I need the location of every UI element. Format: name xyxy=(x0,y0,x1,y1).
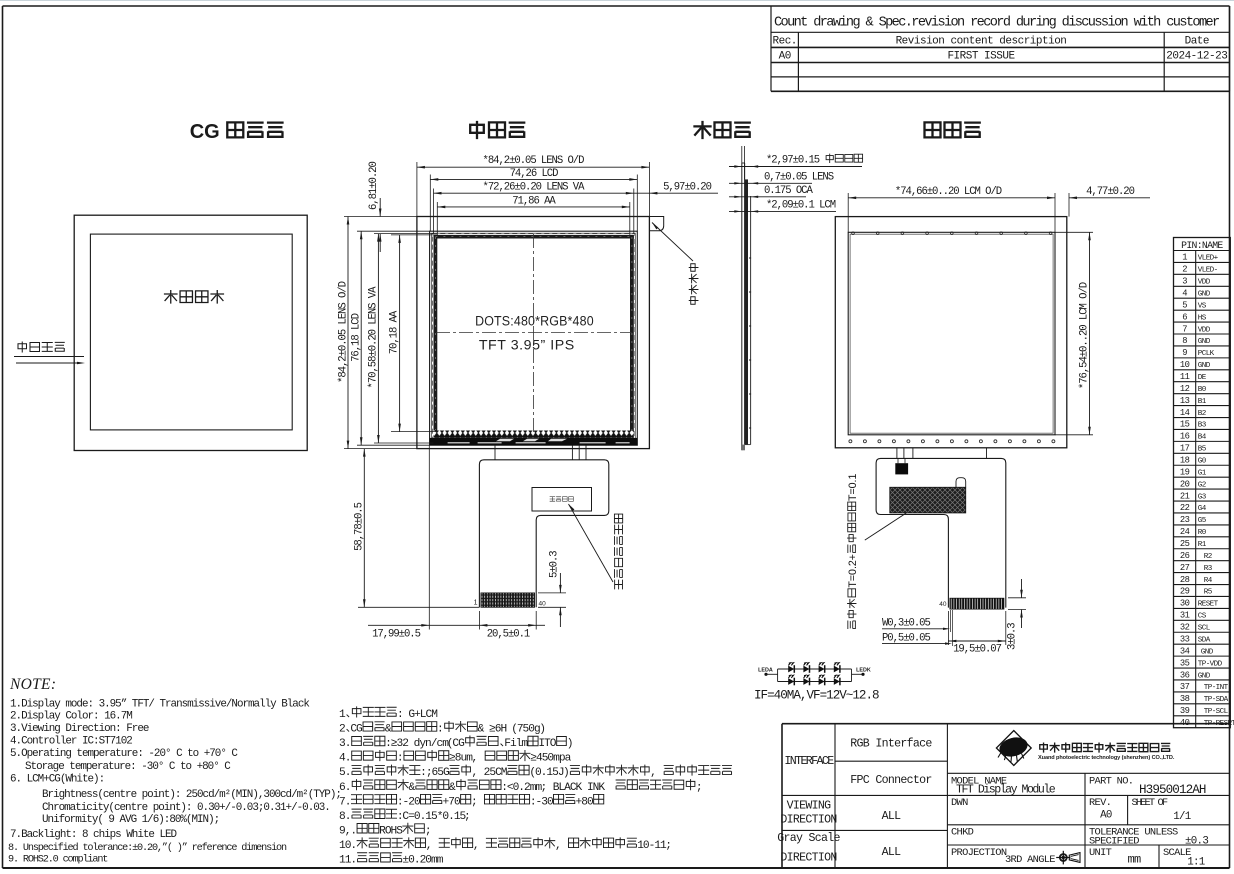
svg-text:27: 27 xyxy=(1180,563,1190,573)
svg-text:NOTE:: NOTE: xyxy=(9,676,56,693)
svg-text:,: , xyxy=(650,767,657,779)
svg-text:+70: +70 xyxy=(443,796,461,808)
svg-text:DIRECTION: DIRECTION xyxy=(780,814,837,827)
svg-text:70,18 AA: 70,18 AA xyxy=(389,310,401,354)
svg-text:Count drawing & Spec.revision: Count drawing & Spec.revision record dur… xyxy=(774,16,1219,31)
svg-text:VDD: VDD xyxy=(1198,326,1211,334)
svg-text:9,.: 9,. xyxy=(339,825,356,837)
svg-text:G2: G2 xyxy=(1198,481,1207,489)
svg-text:≥32 dyn/cm: ≥32 dyn/cm xyxy=(391,738,449,750)
svg-text:PIN:NAME: PIN:NAME xyxy=(1181,240,1223,251)
svg-text:Storage temperature: -30° C to: Storage temperature: -30° C to +80° C xyxy=(25,761,231,773)
svg-text:IF=40MA,VF=12V~12.8: IF=40MA,VF=12V~12.8 xyxy=(754,689,879,703)
svg-text:FPC Connector: FPC Connector xyxy=(850,774,931,787)
svg-text:7.Backlight: 8 chips White LED: 7.Backlight: 8 chips White LED xyxy=(10,829,177,841)
svg-text:,: , xyxy=(473,840,480,852)
svg-text:R1: R1 xyxy=(1198,541,1207,549)
svg-text:*76,54±0..20 LCM O/D: *76,54±0..20 LCM O/D xyxy=(1079,282,1091,389)
svg-text:0.175 OCA: 0.175 OCA xyxy=(764,185,813,197)
svg-text:17: 17 xyxy=(1180,444,1190,454)
svg-text:*2,09±0.1 LCM: *2,09±0.1 LCM xyxy=(766,199,836,211)
svg-text:R2: R2 xyxy=(1204,553,1213,561)
svg-text:23: 23 xyxy=(1180,515,1190,525)
svg-text:,: , xyxy=(471,753,478,765)
svg-text:34: 34 xyxy=(1180,646,1190,656)
svg-text:*72,26±0.20 LENS VA: *72,26±0.20 LENS VA xyxy=(483,182,586,194)
svg-text:B4: B4 xyxy=(1198,434,1207,442)
svg-text:GND: GND xyxy=(1198,338,1211,346)
svg-text:±0.20mm: ±0.20mm xyxy=(402,855,443,867)
svg-text:CG: CG xyxy=(350,724,363,736)
svg-text:Revision content description: Revision content description xyxy=(896,36,1067,48)
svg-text:Brightness(centre point): 250c: Brightness(centre point): 250cd/m²(MIN),… xyxy=(42,789,341,801)
svg-text:3±0.3: 3±0.3 xyxy=(1007,623,1019,650)
svg-text:40: 40 xyxy=(939,601,947,608)
svg-text:P0,5±0.05: P0,5±0.05 xyxy=(882,632,930,644)
svg-text:GND: GND xyxy=(1198,362,1211,370)
svg-text:CG: CG xyxy=(190,121,220,143)
svg-text:*84,2±0.05 LENS O/D: *84,2±0.05 LENS O/D xyxy=(338,281,350,383)
svg-text:21: 21 xyxy=(1180,491,1190,501)
svg-text::: : xyxy=(397,753,403,765)
svg-text:GND: GND xyxy=(1198,672,1211,680)
svg-text:17,99±0.5: 17,99±0.5 xyxy=(372,629,420,641)
svg-text:±0.3: ±0.3 xyxy=(1185,836,1208,848)
svg-text:;: ; xyxy=(665,840,672,852)
svg-text:20: 20 xyxy=(1180,479,1190,489)
svg-text:A0: A0 xyxy=(779,51,791,63)
svg-text:8: 8 xyxy=(1182,336,1187,346)
svg-text:0.15J: 0.15J xyxy=(535,767,564,779)
svg-text:1:1: 1:1 xyxy=(1187,857,1205,869)
svg-text:VLED-: VLED- xyxy=(1198,267,1218,275)
svg-text:7.: 7. xyxy=(339,796,350,808)
svg-text:6: 6 xyxy=(1182,312,1187,322)
svg-text:): ) xyxy=(539,724,546,736)
svg-text:DE: DE xyxy=(1198,374,1207,382)
svg-text:2.Display Color: 16.7M: 2.Display Color: 16.7M xyxy=(10,711,132,723)
svg-text:6. LCM+CG(White):: 6. LCM+CG(White): xyxy=(10,774,104,786)
svg-text:20,5±0.1: 20,5±0.1 xyxy=(487,629,530,641)
svg-text:ALL: ALL xyxy=(882,810,902,823)
svg-text:ALL: ALL xyxy=(882,846,902,859)
svg-text:74,26 LCD: 74,26 LCD xyxy=(510,168,558,180)
svg-text:9. ROHS2.0 compliant: 9. ROHS2.0 compliant xyxy=(8,854,108,866)
svg-text:5.: 5. xyxy=(339,767,350,779)
svg-text:RGB Interface: RGB Interface xyxy=(850,738,932,751)
svg-text:1.Display mode: 3.95” TFT/ Tra: 1.Display mode: 3.95” TFT/ Transmissive/… xyxy=(10,699,309,711)
svg-text:25CM: 25CM xyxy=(484,767,507,779)
svg-text:CS: CS xyxy=(1198,613,1207,621)
svg-text:22: 22 xyxy=(1180,503,1190,513)
svg-text:,: , xyxy=(555,840,562,852)
svg-text:2024-12-23: 2024-12-23 xyxy=(1166,51,1227,63)
svg-text:2: 2 xyxy=(339,724,345,736)
svg-text:LEDK: LEDK xyxy=(856,668,871,674)
svg-text:G1: G1 xyxy=(1198,469,1207,477)
svg-text:GND: GND xyxy=(1201,648,1214,656)
svg-text:CG: CG xyxy=(452,738,465,750)
svg-text:;: ; xyxy=(464,811,471,823)
svg-text:5±0.3: 5±0.3 xyxy=(549,551,561,578)
svg-text:INTERFACE: INTERFACE xyxy=(784,755,834,768)
svg-text:SDA: SDA xyxy=(1198,636,1211,644)
svg-text:750g: 750g xyxy=(517,724,540,736)
svg-text:3.: 3. xyxy=(339,738,350,750)
svg-text:18: 18 xyxy=(1180,456,1190,466)
svg-text:38: 38 xyxy=(1180,694,1190,704)
svg-text:SCL: SCL xyxy=(1198,625,1211,633)
svg-text:R3: R3 xyxy=(1204,565,1213,573)
svg-text:G4: G4 xyxy=(1198,505,1207,513)
svg-text:1: 1 xyxy=(1182,253,1187,263)
svg-text:ITO: ITO xyxy=(538,738,556,750)
svg-text:*70,58±0.20 LENS VA: *70,58±0.20 LENS VA xyxy=(368,286,380,389)
svg-text:24: 24 xyxy=(1180,527,1190,537)
svg-text:DIRECTION: DIRECTION xyxy=(780,852,837,865)
svg-text:SHEET OF: SHEET OF xyxy=(1132,797,1168,809)
svg-text:Film: Film xyxy=(504,738,528,750)
svg-text:Uniformity( 9 AVG 1/6):80%(MIN: Uniformity( 9 AVG 1/6):80%(MIN); xyxy=(42,814,219,826)
svg-text:): ) xyxy=(567,738,574,750)
svg-text:33: 33 xyxy=(1180,634,1190,644)
svg-text:76,18 LCD: 76,18 LCD xyxy=(351,313,363,361)
svg-text:B1: B1 xyxy=(1198,398,1207,406)
svg-text:3.Viewing Direction: Free: 3.Viewing Direction: Free xyxy=(10,723,149,735)
svg-text:DOTS:480*RGB*480: DOTS:480*RGB*480 xyxy=(475,313,594,329)
svg-text:CHKD: CHKD xyxy=(951,827,974,839)
svg-text:31: 31 xyxy=(1180,611,1190,621)
svg-text:VDD: VDD xyxy=(1198,279,1211,287)
svg-text:5,97±0.20: 5,97±0.20 xyxy=(663,182,711,194)
svg-text:;: ; xyxy=(696,782,703,794)
svg-text:*74,66±0..20 LCM O/D: *74,66±0..20 LCM O/D xyxy=(895,186,1002,198)
svg-text:37: 37 xyxy=(1180,682,1190,692)
svg-text:30: 30 xyxy=(1180,599,1190,609)
svg-text:B0: B0 xyxy=(1198,386,1207,394)
svg-text:+80: +80 xyxy=(576,796,594,808)
svg-text:;: ; xyxy=(540,782,547,794)
svg-text:PCLK: PCLK xyxy=(1198,350,1215,358)
svg-text:LEDA: LEDA xyxy=(758,668,773,674)
svg-text:,: , xyxy=(426,840,433,852)
svg-text:): ) xyxy=(563,767,570,779)
svg-text:6.: 6. xyxy=(339,782,350,794)
svg-text:UNIT: UNIT xyxy=(1089,847,1112,859)
svg-text:*2,97±0.15: *2,97±0.15 xyxy=(766,155,820,167)
svg-text:13: 13 xyxy=(1180,396,1190,406)
svg-text:12: 12 xyxy=(1180,384,1190,394)
svg-text:11: 11 xyxy=(1180,372,1190,382)
svg-text:HS: HS xyxy=(1198,314,1207,322)
svg-text:10.: 10. xyxy=(339,840,356,852)
svg-text:SPECIFIED: SPECIFIED xyxy=(1089,836,1139,848)
svg-text:3RD ANGLE: 3RD ANGLE xyxy=(1005,854,1055,866)
svg-text:1: 1 xyxy=(474,600,478,607)
svg-text:Date: Date xyxy=(1185,36,1209,48)
svg-text:39: 39 xyxy=(1180,706,1190,716)
svg-text:W0,3±0.05: W0,3±0.05 xyxy=(882,618,930,630)
svg-text:26: 26 xyxy=(1180,551,1190,561)
svg-text:PROJECTION: PROJECTION xyxy=(951,847,1007,859)
svg-text:16: 16 xyxy=(1180,432,1190,442)
svg-text:TFT Display Module: TFT Display Module xyxy=(956,784,1056,797)
svg-text:28: 28 xyxy=(1180,575,1190,585)
svg-text:RESET: RESET xyxy=(1198,601,1219,609)
svg-text:FIRST ISSUE: FIRST ISSUE xyxy=(947,51,1015,63)
svg-text:10-11: 10-11 xyxy=(637,840,667,852)
svg-text:3: 3 xyxy=(1182,277,1187,287)
svg-text:10: 10 xyxy=(1180,360,1190,370)
svg-text:B5: B5 xyxy=(1198,446,1207,454)
svg-text:19: 19 xyxy=(1180,467,1190,477)
svg-text:B2: B2 xyxy=(1198,410,1207,418)
svg-text:TP-VDD: TP-VDD xyxy=(1198,660,1223,668)
svg-text:Rec.: Rec. xyxy=(773,36,797,48)
svg-text:PART NO.: PART NO. xyxy=(1089,776,1133,788)
svg-text:Gray Scale: Gray Scale xyxy=(777,832,840,845)
svg-text:2: 2 xyxy=(1182,265,1187,275)
svg-text:32: 32 xyxy=(1180,623,1190,633)
svg-text:0,7±0.05 LENS: 0,7±0.05 LENS xyxy=(764,171,834,183)
svg-text:: G+LCM: : G+LCM xyxy=(397,709,437,721)
svg-text:C=0.15*0.15: C=0.15*0.15 xyxy=(402,811,465,823)
svg-text:REV.: REV. xyxy=(1089,797,1111,809)
svg-text:VLED+: VLED+ xyxy=(1198,255,1219,263)
svg-text:1/1: 1/1 xyxy=(1173,811,1191,823)
svg-text:≥450mpa: ≥450mpa xyxy=(530,753,571,765)
svg-text:15: 15 xyxy=(1180,420,1190,430)
svg-text:& ≥6H: & ≥6H xyxy=(478,724,507,736)
svg-text:TP-INT: TP-INT xyxy=(1204,684,1229,692)
svg-text:;: ; xyxy=(425,825,432,837)
svg-text:R0: R0 xyxy=(1198,529,1207,537)
svg-text:ROHS: ROHS xyxy=(379,825,403,837)
svg-text:6,81±0.20: 6,81±0.20 xyxy=(368,162,380,210)
svg-text:*84,2±0.05 LENS O/D: *84,2±0.05 LENS O/D xyxy=(483,155,585,167)
svg-text:R4: R4 xyxy=(1204,577,1213,585)
svg-text:G5: G5 xyxy=(1198,517,1207,525)
svg-text:VS: VS xyxy=(1198,302,1207,310)
svg-text:A0: A0 xyxy=(1100,810,1112,822)
svg-text:14: 14 xyxy=(1180,408,1190,418)
svg-text:BLACK INK: BLACK INK xyxy=(553,782,606,794)
svg-text:19,5±0.07: 19,5±0.07 xyxy=(953,644,1001,656)
svg-text::-30: :-30 xyxy=(530,796,554,808)
svg-text:mm: mm xyxy=(1128,853,1142,867)
svg-text:DWN: DWN xyxy=(951,797,968,809)
svg-text:G0: G0 xyxy=(1198,458,1207,466)
svg-text:5.Operating temperature: -20°: 5.Operating temperature: -20° C to +70° … xyxy=(10,748,238,760)
svg-text:5: 5 xyxy=(1182,300,1187,310)
svg-text:4.: 4. xyxy=(339,753,350,765)
svg-text:<0.2mm: <0.2mm xyxy=(507,782,543,794)
svg-text:TP-SCL: TP-SCL xyxy=(1204,708,1229,716)
svg-text:25: 25 xyxy=(1180,539,1190,549)
svg-text:35: 35 xyxy=(1180,658,1190,668)
svg-text:;: ; xyxy=(471,796,478,808)
svg-text::: : xyxy=(437,724,443,736)
svg-text:29: 29 xyxy=(1180,587,1190,597)
svg-text:G3: G3 xyxy=(1198,493,1207,501)
svg-text:TFT 3.95” IPS: TFT 3.95” IPS xyxy=(479,338,575,354)
svg-text:4,77±0.20: 4,77±0.20 xyxy=(1086,186,1134,198)
svg-text:8.: 8. xyxy=(339,811,350,823)
svg-text::;65G: :;65G xyxy=(420,767,450,779)
svg-text:≥8um: ≥8um xyxy=(449,753,473,765)
svg-text:H3950012AH: H3950012AH xyxy=(1139,783,1206,797)
svg-text:4: 4 xyxy=(1182,288,1187,298)
svg-text:71,86 AA: 71,86 AA xyxy=(512,195,556,207)
svg-text:B3: B3 xyxy=(1198,422,1207,430)
svg-text:40: 40 xyxy=(539,601,547,608)
svg-text:GND: GND xyxy=(1198,290,1211,298)
svg-text:Xuand photoelectric technology: Xuand photoelectric technology (shenzhen… xyxy=(1038,755,1175,761)
svg-text:,: , xyxy=(471,767,478,779)
svg-text:7: 7 xyxy=(1182,324,1187,334)
svg-text:9: 9 xyxy=(1182,348,1187,358)
svg-text:VIEWING: VIEWING xyxy=(787,800,832,813)
svg-text:4.Controller IC:ST7102: 4.Controller IC:ST7102 xyxy=(10,736,132,748)
svg-text:8. Unspecified tolerance:±0.20: 8. Unspecified tolerance:±0.20,”( )” ref… xyxy=(8,842,287,854)
svg-text::-20: :-20 xyxy=(397,796,421,808)
svg-text:T=0.2+: T=0.2+ xyxy=(847,554,859,588)
svg-text:11.: 11. xyxy=(339,855,356,867)
svg-text:T=0.1: T=0.1 xyxy=(847,474,859,501)
svg-text:58,78±0.5: 58,78±0.5 xyxy=(354,502,366,550)
svg-text:36: 36 xyxy=(1180,670,1190,680)
svg-text:TP-SDA: TP-SDA xyxy=(1204,696,1229,704)
svg-text:Chromaticity(centre point): 0.: Chromaticity(centre point): 0.30+/-0.03;… xyxy=(42,802,330,814)
svg-text:R5: R5 xyxy=(1204,589,1213,597)
